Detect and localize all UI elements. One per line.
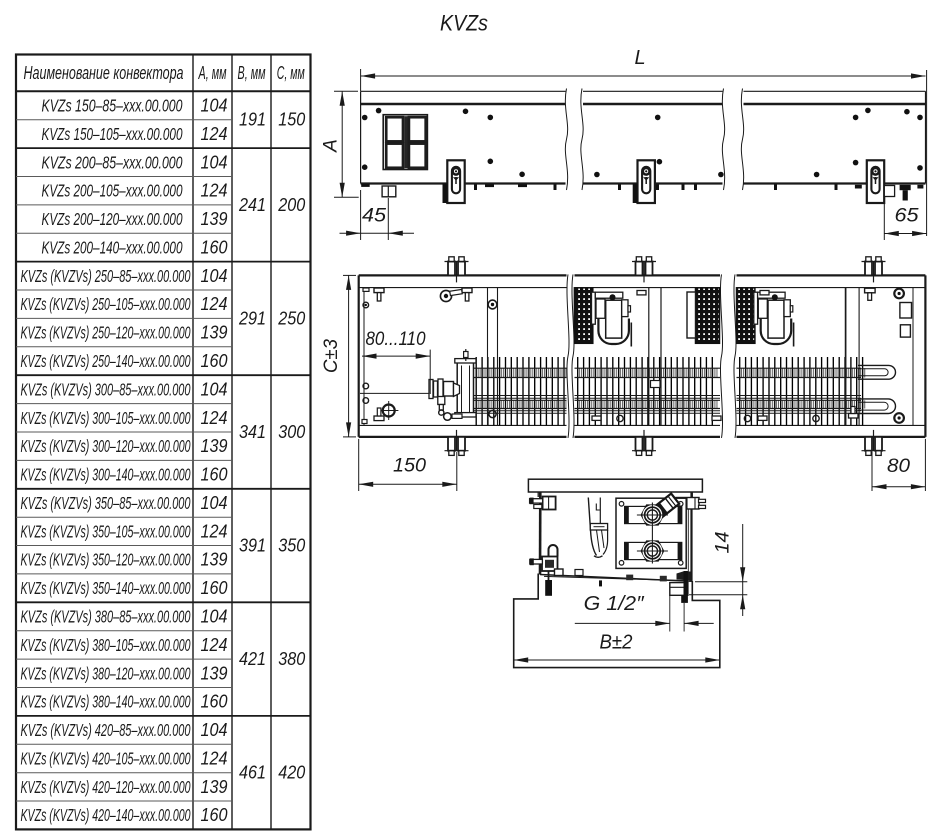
svg-text:KVZs (KVZVs) 420–105–xxx.00.00: KVZs (KVZVs) 420–105–xxx.00.000 (21, 749, 191, 769)
svg-text:391: 391 (239, 536, 266, 556)
svg-text:139: 139 (201, 663, 228, 683)
svg-text:241: 241 (238, 195, 266, 215)
svg-text:G 1/2″: G 1/2″ (584, 593, 645, 615)
svg-text:KVZs (KVZVs) 250–105–xxx.00.00: KVZs (KVZVs) 250–105–xxx.00.000 (21, 294, 191, 314)
svg-text:KVZs (KVZVs) 350–120–xxx.00.00: KVZs (KVZVs) 350–120–xxx.00.000 (21, 550, 191, 570)
svg-text:KVZs (KVZVs) 300–105–xxx.00.00: KVZs (KVZVs) 300–105–xxx.00.000 (21, 408, 191, 428)
svg-text:160: 160 (201, 805, 228, 825)
svg-text:341: 341 (239, 422, 266, 442)
svg-text:В, мм: В, мм (238, 63, 266, 83)
svg-text:KVZs 150–105–xxx.00.000: KVZs 150–105–xxx.00.000 (42, 124, 183, 144)
svg-text:420: 420 (278, 763, 305, 783)
svg-text:160: 160 (201, 237, 228, 257)
svg-text:139: 139 (201, 777, 228, 797)
svg-text:KVZs 200–85–xxx.00.000: KVZs 200–85–xxx.00.000 (42, 152, 183, 172)
svg-text:Наименование конвектора: Наименование конвектора (24, 63, 184, 83)
svg-text:124: 124 (201, 408, 228, 428)
svg-text:14: 14 (712, 532, 733, 554)
svg-text:124: 124 (201, 521, 228, 541)
svg-text:160: 160 (201, 578, 228, 598)
svg-text:A: A (321, 139, 342, 153)
svg-text:191: 191 (239, 110, 266, 130)
svg-text:139: 139 (201, 209, 228, 229)
svg-text:124: 124 (201, 749, 228, 769)
svg-text:80: 80 (887, 456, 910, 477)
svg-text:461: 461 (239, 763, 266, 783)
svg-text:104: 104 (201, 96, 228, 116)
svg-text:А, мм: А, мм (198, 63, 227, 83)
svg-text:KVZs 150–85–xxx.00.000: KVZs 150–85–xxx.00.000 (42, 96, 183, 116)
svg-text:80...110: 80...110 (366, 329, 426, 350)
svg-text:104: 104 (201, 720, 228, 740)
svg-text:KVZs (KVZVs) 350–85–xxx.00.000: KVZs (KVZVs) 350–85–xxx.00.000 (21, 493, 191, 513)
svg-text:300: 300 (278, 422, 305, 442)
svg-text:KVZs (KVZVs) 380–85–xxx.00.000: KVZs (KVZVs) 380–85–xxx.00.000 (21, 607, 191, 627)
svg-text:421: 421 (239, 649, 266, 669)
svg-text:45: 45 (362, 206, 386, 227)
svg-text:KVZs (KVZVs) 380–120–xxx.00.00: KVZs (KVZVs) 380–120–xxx.00.000 (21, 663, 191, 683)
svg-text:L: L (634, 47, 645, 69)
svg-text:KVZs 200–120–xxx.00.000: KVZs 200–120–xxx.00.000 (42, 209, 183, 229)
svg-text:KVZs (KVZVs) 380–140–xxx.00.00: KVZs (KVZVs) 380–140–xxx.00.000 (21, 692, 191, 712)
svg-text:139: 139 (201, 436, 228, 456)
svg-text:124: 124 (201, 294, 228, 314)
svg-text:160: 160 (201, 692, 228, 712)
svg-text:KVZs (KVZVs) 250–120–xxx.00.00: KVZs (KVZVs) 250–120–xxx.00.000 (21, 323, 191, 343)
svg-text:104: 104 (201, 607, 228, 627)
svg-text:KVZs (KVZVs) 300–85–xxx.00.000: KVZs (KVZVs) 300–85–xxx.00.000 (21, 379, 191, 399)
svg-text:380: 380 (278, 649, 305, 669)
svg-text:160: 160 (201, 465, 228, 485)
svg-text:B±2: B±2 (600, 631, 633, 653)
svg-text:KVZs (KVZVs) 420–140–xxx.00.00: KVZs (KVZVs) 420–140–xxx.00.000 (21, 805, 191, 825)
svg-text:104: 104 (201, 379, 228, 399)
svg-text:KVZs (KVZVs) 380–105–xxx.00.00: KVZs (KVZVs) 380–105–xxx.00.000 (21, 635, 191, 655)
svg-text:KVZs 200–140–xxx.00.000: KVZs 200–140–xxx.00.000 (42, 237, 183, 257)
svg-text:160: 160 (201, 351, 228, 371)
svg-text:124: 124 (201, 124, 228, 144)
svg-text:291: 291 (238, 308, 266, 328)
svg-text:C±3: C±3 (321, 339, 342, 373)
svg-text:KVZs (KVZVs) 300–140–xxx.00.00: KVZs (KVZVs) 300–140–xxx.00.000 (21, 465, 191, 485)
svg-text:124: 124 (201, 181, 228, 201)
svg-text:KVZs (KVZVs) 350–140–xxx.00.00: KVZs (KVZVs) 350–140–xxx.00.000 (21, 578, 191, 598)
svg-text:KVZs (KVZVs) 420–85–xxx.00.000: KVZs (KVZVs) 420–85–xxx.00.000 (21, 720, 191, 740)
svg-text:139: 139 (201, 550, 228, 570)
svg-text:KVZs 200–105–xxx.00.000: KVZs 200–105–xxx.00.000 (42, 181, 183, 201)
svg-text:104: 104 (201, 266, 228, 286)
svg-text:65: 65 (895, 206, 919, 227)
svg-text:200: 200 (277, 195, 305, 215)
svg-text:104: 104 (201, 152, 228, 172)
svg-text:139: 139 (201, 323, 228, 343)
svg-text:104: 104 (201, 493, 228, 513)
svg-text:KVZs (KVZVs) 250–85–xxx.00.000: KVZs (KVZVs) 250–85–xxx.00.000 (21, 266, 191, 286)
svg-text:350: 350 (278, 536, 305, 556)
svg-text:С, мм: С, мм (277, 63, 305, 83)
svg-text:KVZs (KVZVs) 300–120–xxx.00.00: KVZs (KVZVs) 300–120–xxx.00.000 (21, 436, 191, 456)
svg-text:124: 124 (201, 635, 228, 655)
svg-text:KVZs (KVZVs) 350–105–xxx.00.00: KVZs (KVZVs) 350–105–xxx.00.000 (21, 521, 191, 541)
svg-text:KVZs (KVZVs) 420–120–xxx.00.00: KVZs (KVZVs) 420–120–xxx.00.000 (21, 777, 191, 797)
svg-text:KVZs: KVZs (440, 11, 488, 36)
svg-text:KVZs (KVZVs) 250–140–xxx.00.00: KVZs (KVZVs) 250–140–xxx.00.000 (21, 351, 191, 371)
svg-text:250: 250 (277, 308, 305, 328)
svg-text:150: 150 (393, 456, 426, 477)
svg-text:150: 150 (278, 110, 305, 130)
